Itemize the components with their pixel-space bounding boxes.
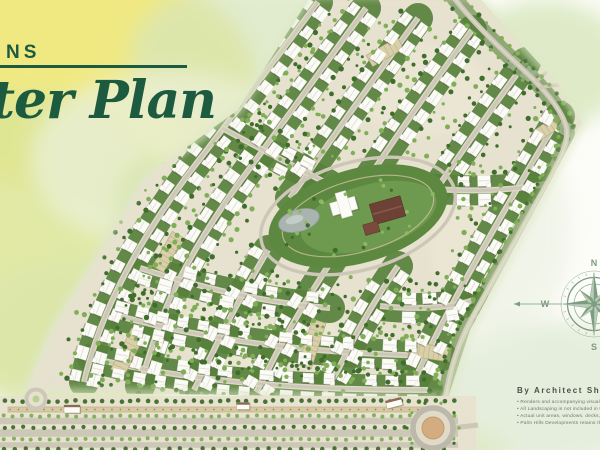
tree — [264, 314, 269, 319]
tree — [397, 83, 402, 88]
tree — [268, 173, 272, 177]
villa-cluster — [198, 363, 212, 376]
tree — [290, 135, 293, 138]
tree — [336, 283, 339, 286]
tree — [471, 172, 476, 177]
tree — [339, 323, 344, 328]
tree — [278, 157, 282, 161]
tree — [316, 325, 319, 328]
tree — [473, 84, 478, 89]
tree — [141, 291, 146, 296]
tree — [331, 75, 336, 80]
tree — [297, 65, 302, 70]
tree — [407, 325, 411, 329]
tree — [407, 288, 411, 292]
tree — [155, 280, 158, 283]
tree — [235, 227, 240, 232]
tree — [244, 255, 247, 258]
tree — [429, 325, 433, 329]
tree — [319, 332, 322, 335]
tree — [277, 188, 280, 191]
tree — [142, 275, 145, 278]
tree — [298, 52, 303, 57]
villa-cluster — [406, 376, 420, 387]
tree — [518, 204, 523, 209]
tree — [293, 320, 296, 323]
tree — [378, 21, 381, 24]
villa-cluster — [259, 370, 275, 382]
tree — [272, 90, 276, 94]
tree — [491, 193, 494, 196]
tree — [257, 322, 261, 326]
tree — [433, 111, 436, 114]
tree — [313, 145, 316, 148]
tree — [434, 372, 439, 377]
tree — [458, 253, 462, 257]
tree — [127, 229, 132, 234]
tree — [393, 325, 397, 329]
tree — [67, 337, 71, 341]
tree — [256, 184, 260, 188]
tree — [263, 306, 266, 309]
disclaimer-list: • Renders and accompanying visual mate •… — [517, 399, 600, 427]
tree — [434, 36, 438, 40]
tree — [115, 326, 119, 330]
tree — [345, 310, 349, 314]
tree — [264, 360, 268, 364]
tree — [390, 333, 394, 337]
master-plan-page: { "header": { "brand_fragment": "NS", "t… — [0, 0, 600, 450]
tree — [385, 380, 390, 385]
tree — [494, 71, 498, 75]
tree — [214, 353, 218, 357]
tree — [359, 290, 362, 293]
tree — [284, 375, 288, 379]
tree — [356, 64, 359, 67]
tree — [362, 378, 367, 383]
tree — [191, 295, 194, 298]
tree — [222, 233, 226, 237]
tree — [362, 149, 366, 153]
tree — [367, 348, 372, 353]
tree — [283, 359, 287, 363]
tree — [314, 332, 318, 336]
tree — [214, 142, 217, 145]
tree — [270, 295, 275, 300]
tree — [298, 143, 301, 146]
tree — [442, 102, 445, 105]
villa-cluster — [132, 372, 147, 385]
tree — [411, 153, 415, 157]
tree — [101, 374, 104, 377]
tree — [118, 287, 123, 292]
tree — [322, 367, 327, 372]
tree — [277, 288, 282, 293]
tree — [294, 349, 298, 353]
tree — [229, 237, 234, 242]
tree — [422, 370, 427, 375]
tree — [100, 383, 104, 387]
tree — [331, 293, 335, 297]
tree — [285, 143, 290, 148]
tree — [399, 380, 403, 384]
tree — [405, 56, 410, 61]
tree — [228, 307, 233, 312]
tree — [171, 336, 174, 339]
tree — [352, 370, 356, 374]
tree — [151, 384, 156, 389]
tree — [111, 336, 115, 340]
tree — [498, 122, 502, 126]
tree — [258, 345, 262, 349]
tree — [244, 311, 247, 314]
villa-cluster — [446, 309, 461, 323]
tree — [401, 360, 406, 365]
tree — [240, 118, 244, 122]
tree — [308, 288, 311, 291]
tree — [427, 27, 432, 32]
tree — [464, 285, 467, 288]
tree — [69, 364, 74, 369]
tree — [508, 113, 512, 117]
tree — [249, 160, 254, 165]
tree — [435, 48, 440, 53]
tree — [449, 31, 452, 34]
tree — [283, 367, 288, 372]
tree — [342, 334, 346, 338]
tree — [223, 380, 226, 383]
tree — [366, 117, 371, 122]
tree — [294, 330, 299, 335]
tree — [232, 319, 237, 324]
tree — [322, 98, 325, 101]
tree — [390, 79, 395, 84]
tree — [143, 341, 147, 345]
tree — [315, 113, 319, 117]
tree — [405, 370, 408, 373]
tree — [300, 362, 303, 365]
roundabout-small — [27, 390, 46, 409]
tree — [457, 206, 461, 210]
tree — [418, 71, 423, 76]
tree — [366, 361, 370, 365]
tree — [263, 103, 266, 106]
tree — [311, 318, 316, 323]
tree — [203, 360, 208, 365]
tree — [278, 384, 281, 387]
tree — [268, 324, 273, 329]
tree — [324, 363, 329, 368]
tree — [249, 313, 253, 317]
tree — [148, 265, 153, 270]
tree — [338, 330, 341, 333]
tree — [419, 126, 424, 131]
tree — [177, 355, 182, 360]
tree — [458, 124, 461, 127]
tree — [267, 120, 272, 125]
tree — [183, 305, 187, 309]
tree — [216, 243, 219, 246]
tree — [315, 366, 320, 371]
tree — [313, 30, 318, 35]
tree — [370, 108, 374, 112]
tree — [529, 128, 533, 132]
tree — [481, 170, 485, 174]
tree — [125, 304, 128, 307]
tree — [413, 370, 416, 373]
tree — [102, 255, 106, 259]
tree — [88, 373, 93, 378]
tree — [415, 282, 418, 285]
tree — [482, 213, 485, 216]
tree — [513, 167, 517, 171]
tree — [171, 223, 176, 228]
tree — [264, 364, 267, 367]
tree — [245, 118, 250, 123]
tree — [184, 327, 189, 332]
tree — [412, 77, 417, 82]
tree — [458, 182, 463, 187]
credit-block: By Architect Sheha • Renders and accompa… — [517, 386, 600, 427]
tree — [468, 96, 471, 99]
tree — [405, 75, 409, 79]
tree — [279, 305, 283, 309]
tree — [212, 383, 217, 388]
tree — [219, 296, 222, 299]
tree — [344, 371, 347, 374]
tree — [64, 376, 69, 381]
tree — [297, 146, 300, 149]
tree — [251, 269, 255, 273]
tree — [441, 289, 444, 292]
tree — [163, 309, 167, 313]
tree — [291, 361, 294, 364]
tree — [236, 313, 240, 317]
tree — [126, 359, 130, 363]
tree — [400, 302, 405, 307]
tree — [168, 346, 172, 350]
tree — [321, 114, 326, 119]
tree — [249, 279, 254, 284]
tree — [308, 360, 313, 365]
tree — [111, 341, 114, 344]
tree — [327, 332, 330, 335]
tree — [492, 170, 497, 175]
tree — [470, 235, 473, 238]
tree — [132, 348, 137, 353]
tree — [159, 243, 162, 246]
tree — [453, 119, 457, 123]
tree — [405, 88, 410, 93]
tree — [192, 208, 196, 212]
tree — [219, 175, 223, 179]
tree — [390, 112, 395, 117]
villa-cluster — [217, 323, 232, 335]
tree — [158, 254, 162, 258]
tree — [139, 324, 142, 327]
disclaimer-item: • Palm Hills Developments retains the ri… — [517, 420, 600, 427]
tree — [378, 372, 382, 376]
tree — [229, 353, 233, 357]
tree — [480, 90, 483, 93]
tree — [305, 147, 309, 151]
tree — [205, 276, 209, 280]
tree — [330, 345, 334, 349]
tree — [216, 376, 221, 381]
tree — [182, 298, 186, 302]
tree — [310, 50, 315, 55]
tree — [122, 236, 126, 240]
tree — [164, 232, 168, 236]
villa-cluster — [279, 332, 294, 345]
tree — [239, 157, 242, 160]
tree — [526, 116, 531, 121]
tree — [261, 129, 264, 132]
tree — [445, 124, 450, 129]
tree — [316, 125, 321, 130]
tree — [451, 82, 456, 87]
tree — [126, 373, 130, 377]
tree — [417, 322, 421, 326]
tree — [344, 146, 348, 150]
tree — [201, 268, 206, 273]
tree — [351, 296, 356, 301]
tree — [351, 151, 355, 155]
tree — [308, 151, 312, 155]
tree — [421, 289, 424, 292]
tree — [422, 377, 426, 381]
tree — [364, 131, 368, 135]
tree — [250, 122, 254, 126]
tree — [468, 214, 473, 219]
tree — [249, 136, 254, 141]
tree — [301, 329, 306, 334]
tree — [275, 312, 279, 316]
tree — [204, 330, 208, 334]
tree — [428, 295, 432, 299]
tree — [143, 351, 146, 354]
tree — [205, 349, 208, 352]
tree — [304, 355, 307, 358]
tree — [306, 346, 311, 351]
tree — [521, 91, 526, 96]
tree — [141, 303, 145, 307]
tree — [242, 204, 247, 209]
tree — [460, 174, 464, 178]
tree — [242, 131, 245, 134]
tree — [339, 66, 344, 71]
tree — [302, 320, 306, 324]
tree — [255, 123, 259, 127]
tree — [377, 39, 382, 44]
tree — [427, 136, 431, 140]
tree — [392, 372, 396, 376]
tree — [331, 108, 335, 112]
tree — [96, 341, 101, 346]
tree — [419, 307, 422, 310]
tree — [216, 360, 221, 365]
tree — [154, 380, 157, 383]
tree — [402, 287, 406, 291]
master-plan-map: NSWE — [0, 0, 600, 450]
tree — [143, 208, 148, 213]
tree — [488, 68, 491, 71]
tree — [495, 132, 499, 136]
tree — [423, 60, 428, 65]
tree — [172, 164, 176, 168]
tree — [110, 260, 114, 264]
tree — [119, 331, 122, 334]
tree — [371, 336, 376, 341]
tree — [311, 107, 315, 111]
tree — [257, 111, 261, 115]
tree — [167, 244, 172, 249]
tree — [412, 63, 416, 67]
tree — [293, 62, 297, 66]
tree — [435, 271, 439, 275]
tree — [272, 135, 277, 140]
tree — [486, 143, 489, 146]
tree — [355, 47, 360, 52]
tree — [319, 36, 323, 40]
tree — [189, 194, 194, 199]
tree — [449, 170, 452, 173]
tree — [283, 282, 286, 285]
tree — [206, 175, 209, 178]
tree — [498, 183, 503, 188]
tree — [202, 203, 205, 206]
tree — [198, 187, 201, 190]
tree — [302, 364, 306, 368]
tree — [74, 310, 79, 315]
tree — [256, 312, 261, 317]
tree — [276, 367, 279, 370]
tree — [166, 359, 169, 362]
tree — [517, 150, 520, 153]
tree — [381, 111, 384, 114]
tree — [159, 291, 163, 295]
tree — [378, 330, 383, 335]
tree — [445, 323, 449, 327]
tree — [470, 206, 474, 210]
tree — [196, 337, 201, 342]
tree — [579, 133, 584, 138]
tree — [344, 360, 347, 363]
tree — [472, 101, 477, 106]
tree — [147, 276, 150, 279]
tree — [110, 348, 113, 351]
tree — [204, 193, 209, 198]
tree — [250, 354, 255, 359]
tree — [447, 333, 450, 336]
tree — [410, 334, 415, 339]
tree — [249, 243, 254, 248]
tree — [210, 168, 214, 172]
tree — [452, 133, 455, 136]
tree — [338, 307, 341, 310]
tree — [176, 309, 180, 313]
tree — [434, 282, 439, 287]
tree — [321, 149, 325, 153]
tree — [209, 302, 213, 306]
tree — [137, 218, 142, 223]
tree — [383, 322, 386, 325]
tree — [108, 343, 111, 346]
architect-credit: By Architect Sheha — [517, 386, 600, 395]
tree — [326, 87, 329, 90]
tree — [323, 302, 328, 307]
tree — [265, 335, 269, 339]
